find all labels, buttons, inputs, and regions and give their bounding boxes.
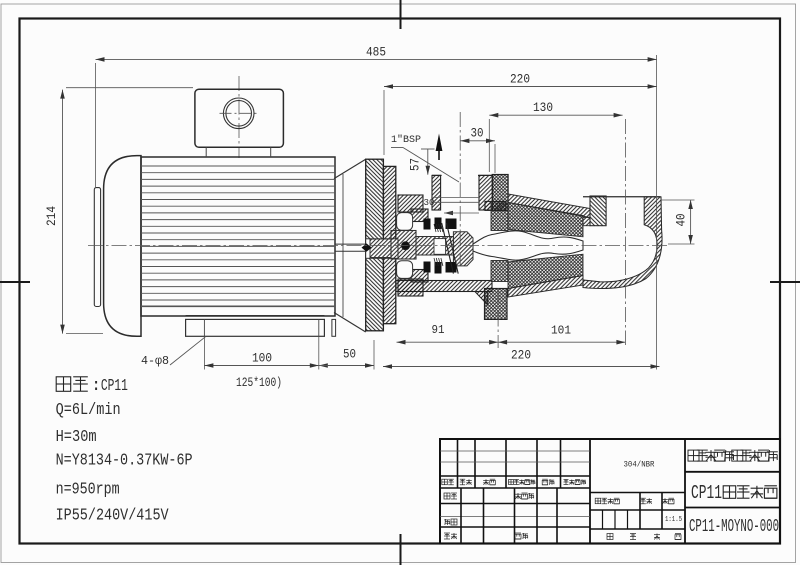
svg-text::: : (91, 377, 101, 396)
svg-text:H=30m: H=30m (56, 428, 97, 447)
svg-text:IP55/240V/415V: IP55/240V/415V (56, 507, 170, 526)
svg-text:Q=6L/min: Q=6L/min (56, 401, 121, 420)
svg-text:57: 57 (409, 158, 423, 171)
svg-text:304/NBR: 304/NBR (624, 460, 655, 470)
svg-text:220: 220 (511, 349, 531, 363)
svg-text:91: 91 (432, 323, 445, 337)
svg-text:N=Y8134-0.37KW-6P: N=Y8134-0.37KW-6P (56, 452, 193, 471)
svg-text:30: 30 (471, 127, 484, 141)
svg-text:CP11: CP11 (691, 482, 722, 504)
svg-text:n=950rpm: n=950rpm (56, 481, 120, 500)
svg-text:1"BSP: 1"BSP (391, 134, 421, 146)
svg-text:100: 100 (252, 352, 272, 366)
svg-text:214: 214 (44, 206, 59, 226)
svg-text:4-φ8: 4-φ8 (141, 354, 169, 368)
svg-text:40: 40 (675, 214, 689, 227)
svg-text:50: 50 (343, 348, 356, 362)
svg-text:485: 485 (366, 45, 386, 60)
svg-text:125*100): 125*100) (236, 376, 282, 390)
svg-text:CP11-MOYNO-000: CP11-MOYNO-000 (689, 517, 779, 537)
svg-text:1:1.5: 1:1.5 (665, 516, 682, 524)
svg-text:220: 220 (510, 72, 530, 87)
svg-text:CP11: CP11 (101, 377, 128, 396)
svg-text:130: 130 (533, 100, 553, 115)
svg-text:101: 101 (551, 324, 571, 338)
